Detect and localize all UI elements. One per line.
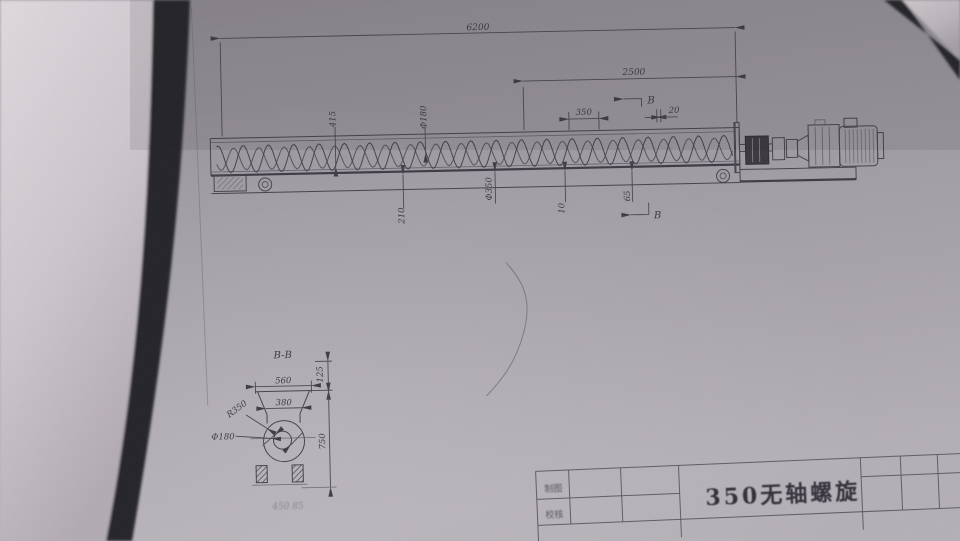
photo-grain bbox=[0, 0, 960, 541]
photo-of-engineering-drawing: 6200 2500 350 20 B B 415 Φ180 bbox=[0, 0, 960, 541]
photo: 6200 2500 350 20 B B 415 Φ180 bbox=[0, 0, 960, 541]
